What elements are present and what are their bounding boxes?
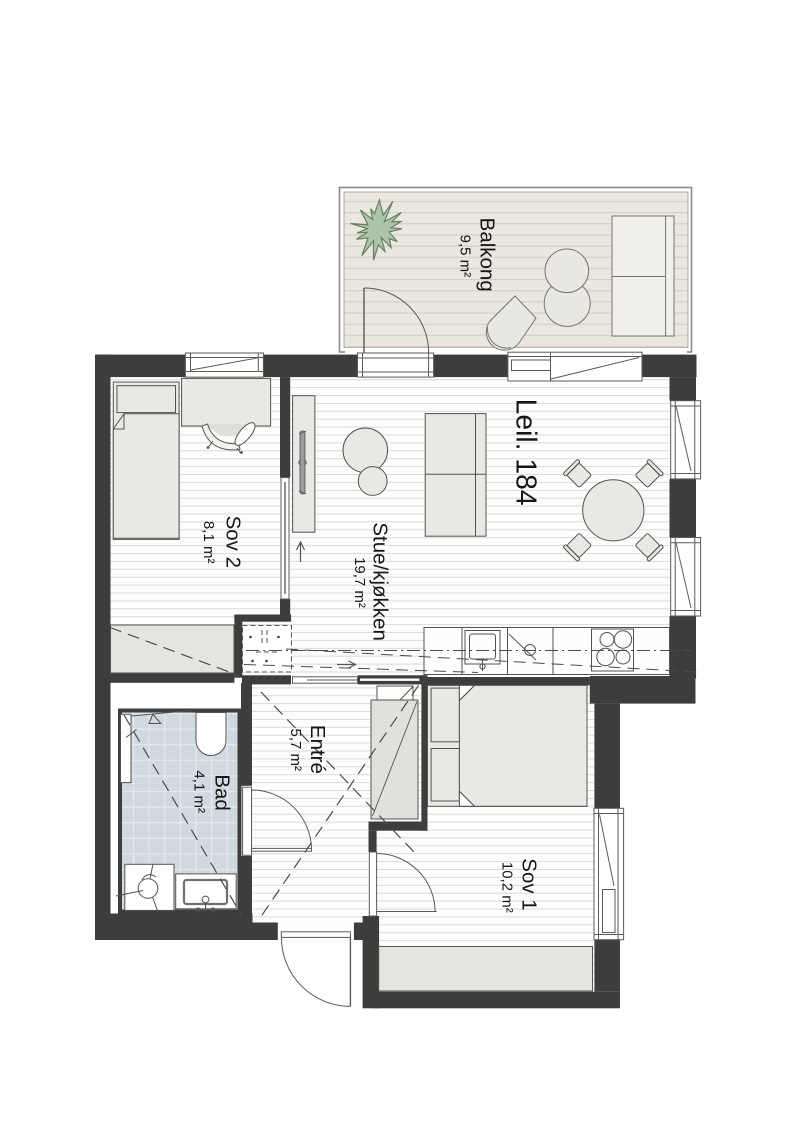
svg-text:8,1 m²: 8,1 m²	[200, 521, 217, 564]
svg-text:19,7 m²: 19,7 m²	[351, 557, 368, 608]
svg-text:Entré: Entré	[306, 725, 329, 774]
svg-text:4,1 m²: 4,1 m²	[191, 770, 208, 813]
svg-text:9,5 m²: 9,5 m²	[457, 235, 474, 278]
svg-text:Stue/kjøkken: Stue/kjøkken	[369, 522, 392, 641]
svg-text:Sov 1: Sov 1	[518, 858, 541, 910]
svg-text:Bad: Bad	[210, 774, 233, 810]
svg-text:10,2 m²: 10,2 m²	[499, 862, 516, 913]
svg-text:Leil. 184: Leil. 184	[511, 399, 543, 506]
svg-text:Sov 2: Sov 2	[222, 516, 245, 568]
svg-text:Balkong: Balkong	[476, 218, 499, 292]
svg-text:5,7 m²: 5,7 m²	[287, 729, 304, 772]
